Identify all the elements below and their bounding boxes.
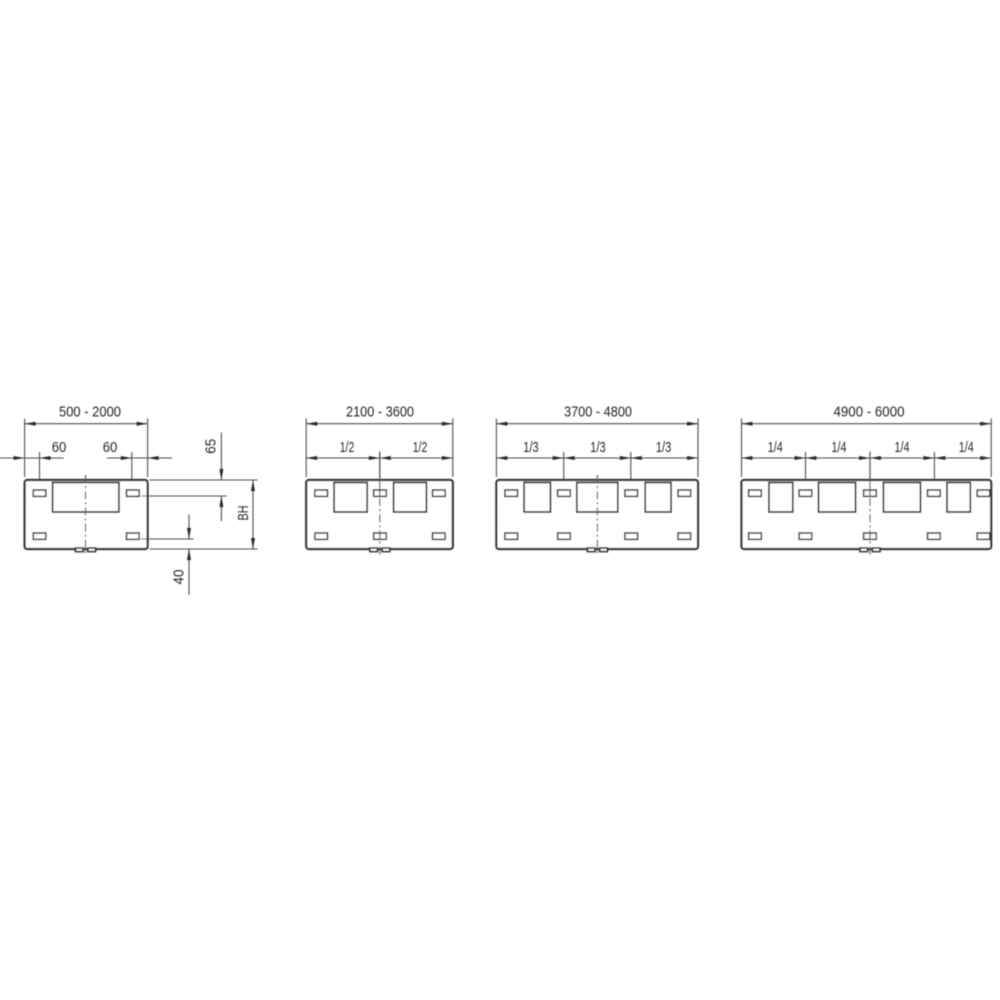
svg-text:60: 60 xyxy=(103,440,118,456)
svg-text:1/4: 1/4 xyxy=(895,440,910,456)
svg-text:1/3: 1/3 xyxy=(590,440,605,456)
svg-text:500 - 2000: 500 - 2000 xyxy=(59,404,121,420)
svg-text:1/3: 1/3 xyxy=(523,440,538,456)
svg-text:1/2: 1/2 xyxy=(413,440,428,456)
svg-text:1/3: 1/3 xyxy=(656,440,671,456)
svg-text:BH: BH xyxy=(236,506,252,521)
svg-text:4900 - 6000: 4900 - 6000 xyxy=(834,404,905,420)
svg-text:1/2: 1/2 xyxy=(340,440,355,456)
svg-text:3700 - 4800: 3700 - 4800 xyxy=(564,404,632,420)
svg-text:1/4: 1/4 xyxy=(832,440,847,456)
svg-text:60: 60 xyxy=(52,440,67,456)
svg-text:2100 - 3600: 2100 - 3600 xyxy=(346,404,414,420)
svg-text:40: 40 xyxy=(172,569,188,584)
svg-text:1/4: 1/4 xyxy=(768,440,783,456)
svg-text:65: 65 xyxy=(204,439,220,454)
svg-text:1/4: 1/4 xyxy=(959,440,974,456)
